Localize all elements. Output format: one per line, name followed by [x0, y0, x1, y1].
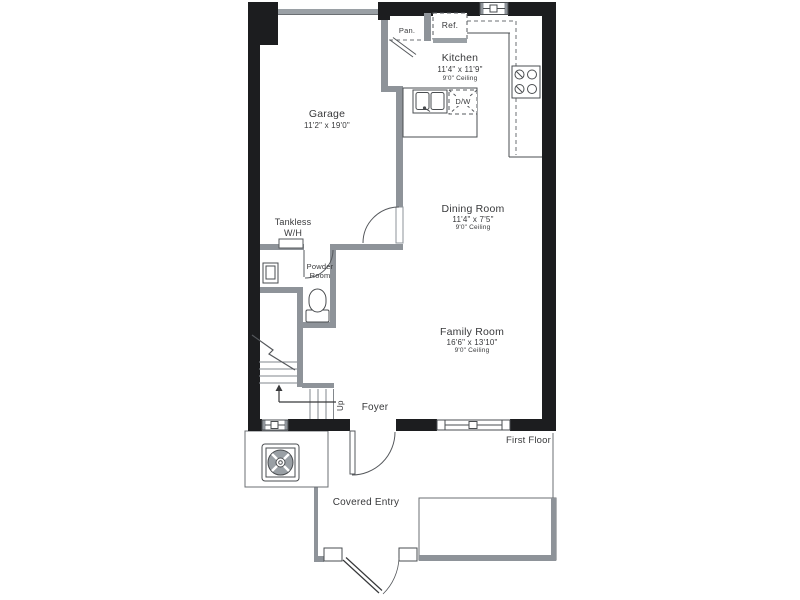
entry-posts — [324, 548, 417, 561]
kitchen-ceiling: 9'0" Ceiling — [443, 76, 478, 83]
refrigerator-label: Ref. — [442, 21, 458, 30]
powder-room-label-line2: Room — [310, 272, 331, 280]
foyer-label: Foyer — [362, 403, 389, 413]
dining-name: Dining Room — [442, 204, 505, 215]
entry-stoop — [419, 433, 556, 561]
floor-plan-linework — [0, 0, 800, 600]
entry-gate-door — [343, 558, 399, 595]
ac-unit — [262, 444, 299, 481]
dining-dims: 11'4" x 7'5" — [452, 216, 493, 224]
family-ceiling: 9'0" Ceiling — [455, 348, 490, 355]
kitchen-window — [480, 3, 508, 15]
first-floor-label: First Floor — [506, 436, 551, 446]
front-door — [350, 431, 395, 475]
kitchen-dims: 11'4" x 11'9" — [437, 66, 482, 74]
dishwasher-label: D/W — [454, 98, 471, 106]
toilet — [306, 289, 329, 322]
family-room-window — [437, 420, 510, 430]
kitchen-sink — [413, 90, 447, 113]
garage-name: Garage — [309, 109, 345, 120]
garage-dims: 11'2" x 19'0" — [304, 122, 350, 130]
powder-room-label-line1: Powder — [307, 263, 334, 271]
pantry-label: Pan. — [399, 27, 415, 35]
staircase — [252, 335, 336, 419]
garage-door — [278, 9, 378, 15]
family-name: Family Room — [440, 327, 504, 338]
up-label: Up — [337, 400, 345, 411]
dining-ceiling: 9'0" Ceiling — [456, 225, 491, 232]
covered-entry-label: Covered Entry — [333, 498, 400, 508]
garage-entry-door — [363, 207, 403, 243]
tankless-label-line1: Tankless — [275, 218, 312, 227]
tankless-label-line2: W/H — [284, 229, 302, 238]
foyer-window — [262, 420, 288, 430]
floor-plan: Garage 11'2" x 19'0" Kitchen 11'4" x 11'… — [0, 0, 800, 600]
family-dims: 16'6" x 13'10" — [446, 339, 497, 347]
cooktop — [512, 66, 540, 98]
kitchen-name: Kitchen — [442, 53, 478, 64]
